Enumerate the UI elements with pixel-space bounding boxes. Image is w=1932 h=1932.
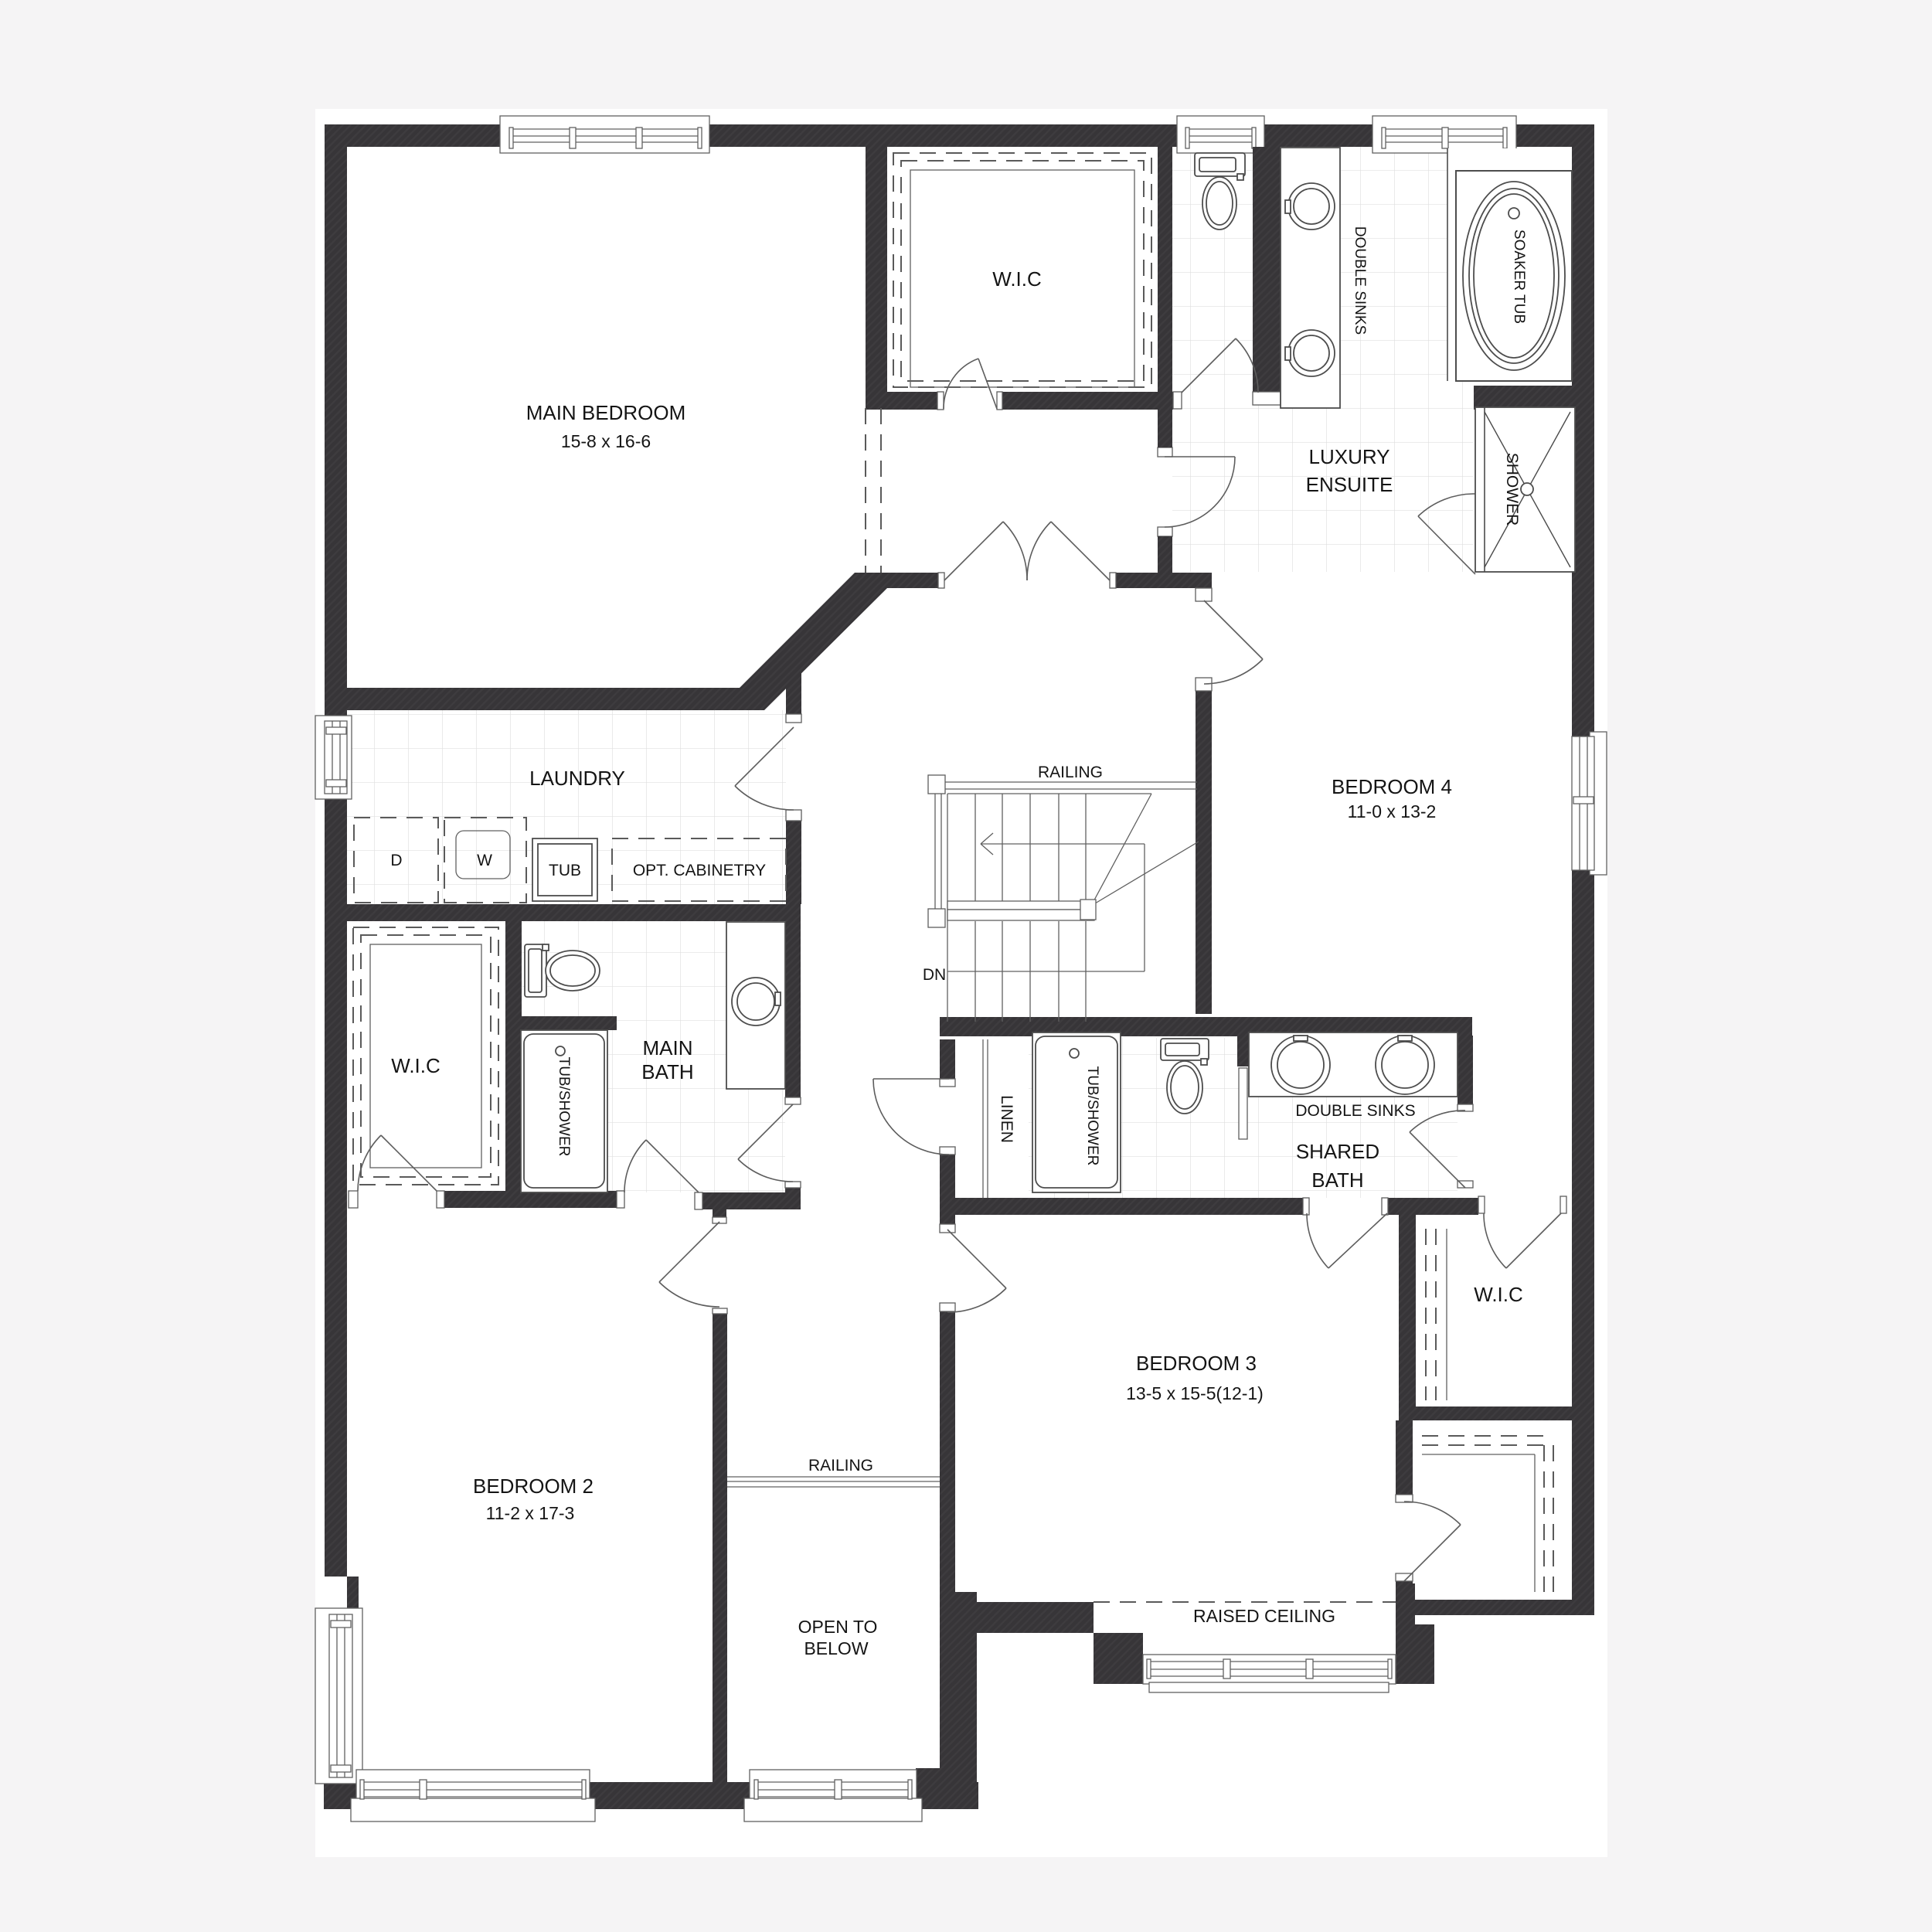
svg-text:W.I.C: W.I.C <box>992 267 1042 291</box>
svg-text:BATH: BATH <box>1311 1168 1363 1192</box>
svg-text:BATH: BATH <box>641 1060 693 1083</box>
svg-text:RAILING: RAILING <box>1038 764 1103 781</box>
svg-text:LUXURY: LUXURY <box>1308 445 1389 468</box>
svg-text:W.I.C: W.I.C <box>1474 1283 1523 1306</box>
svg-text:W.I.C: W.I.C <box>391 1054 440 1077</box>
svg-text:W: W <box>477 852 492 869</box>
svg-text:BEDROOM 4: BEDROOM 4 <box>1332 775 1452 798</box>
svg-text:TUB: TUB <box>549 862 581 879</box>
svg-text:11-0 x 13-2: 11-0 x 13-2 <box>1348 801 1437 821</box>
svg-text:SHARED: SHARED <box>1296 1140 1379 1163</box>
svg-text:TUB/SHOWER: TUB/SHOWER <box>556 1057 572 1157</box>
svg-text:DN: DN <box>923 966 946 984</box>
svg-text:LAUNDRY: LAUNDRY <box>529 767 625 790</box>
svg-text:MAIN: MAIN <box>643 1036 693 1060</box>
svg-text:ENSUITE: ENSUITE <box>1306 473 1393 496</box>
svg-text:RAISED CEILING: RAISED CEILING <box>1193 1606 1335 1626</box>
svg-text:D: D <box>390 852 402 869</box>
svg-text:TUB/SHOWER: TUB/SHOWER <box>1084 1066 1100 1166</box>
svg-text:DOUBLE SINKS: DOUBLE SINKS <box>1352 226 1368 335</box>
svg-text:11-2 x 17-3: 11-2 x 17-3 <box>486 1503 575 1523</box>
svg-text:SOAKER TUB: SOAKER TUB <box>1511 230 1527 324</box>
svg-text:13-5 x 15-5(12-1): 13-5 x 15-5(12-1) <box>1126 1383 1264 1403</box>
svg-text:OPEN TO: OPEN TO <box>798 1617 878 1637</box>
svg-text:RAILING: RAILING <box>808 1457 873 1475</box>
svg-text:BELOW: BELOW <box>804 1638 868 1658</box>
svg-text:SHOWER: SHOWER <box>1503 453 1521 526</box>
svg-text:MAIN BEDROOM: MAIN BEDROOM <box>526 401 686 424</box>
svg-text:BEDROOM 3: BEDROOM 3 <box>1136 1352 1257 1375</box>
svg-text:OPT. CABINETRY: OPT. CABINETRY <box>633 862 766 879</box>
svg-text:LINEN: LINEN <box>998 1095 1015 1143</box>
svg-text:BEDROOM 2: BEDROOM 2 <box>473 1475 594 1498</box>
svg-text:DOUBLE SINKS: DOUBLE SINKS <box>1295 1102 1415 1120</box>
svg-text:15-8 x 16-6: 15-8 x 16-6 <box>561 431 651 451</box>
